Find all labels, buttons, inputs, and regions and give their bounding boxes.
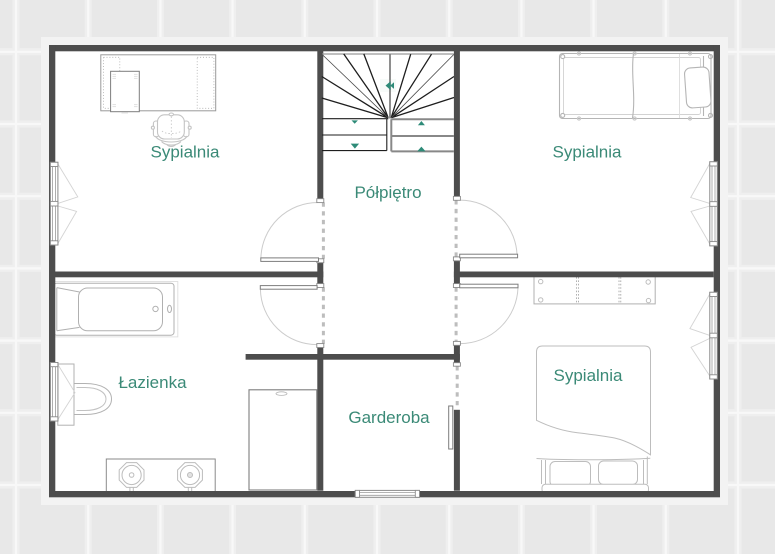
svg-text:Sypialnia: Sypialnia xyxy=(554,366,624,385)
svg-text:Garderoba: Garderoba xyxy=(348,408,430,427)
svg-text:Półpiętro: Półpiętro xyxy=(354,183,421,202)
svg-text:Sypialnia: Sypialnia xyxy=(151,143,221,162)
svg-text:Łazienka: Łazienka xyxy=(118,373,187,392)
svg-text:Sypialnia: Sypialnia xyxy=(553,143,623,162)
